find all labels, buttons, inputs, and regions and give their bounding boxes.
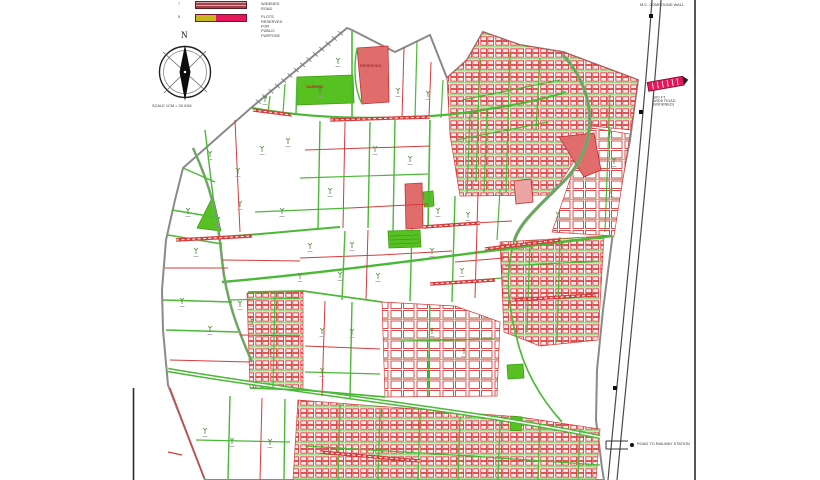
reserved-plot-label: RESERVED [360,64,381,69]
legend-index: 8 [178,15,180,20]
compass-rose [160,45,211,101]
compass-north-label: N [181,30,188,40]
legend-label: WIDENED ROAD [261,2,279,11]
legend-label: PLOTS RESERVED FOR PUBLIC PURPOSE [261,15,282,38]
tp-scheme-map [0,0,820,480]
map-sheet: 7 WIDENED ROAD 8 PLOTS RESERVED FOR PUBL… [0,0,820,480]
widened-road-note: 100 FT. WIDE ROAD (WIDENED) [653,96,676,107]
compass-scale-text: SCALE 1CM = 30.01M [152,104,192,109]
garden-plot-label: GARDEN [306,85,323,90]
compound-wall-note: M.C. COMPOUND WALL [640,3,684,8]
road-destination-note: ROAD TO RAILWAY STATION [637,442,690,447]
legend-index: 7 [178,2,180,7]
reserved-plots-swatch-icon [195,14,247,22]
railway-crossing-marker [647,75,689,91]
widened-road-note-line3: (WIDENED) [653,103,676,107]
widened-road-swatch-icon [195,1,247,9]
